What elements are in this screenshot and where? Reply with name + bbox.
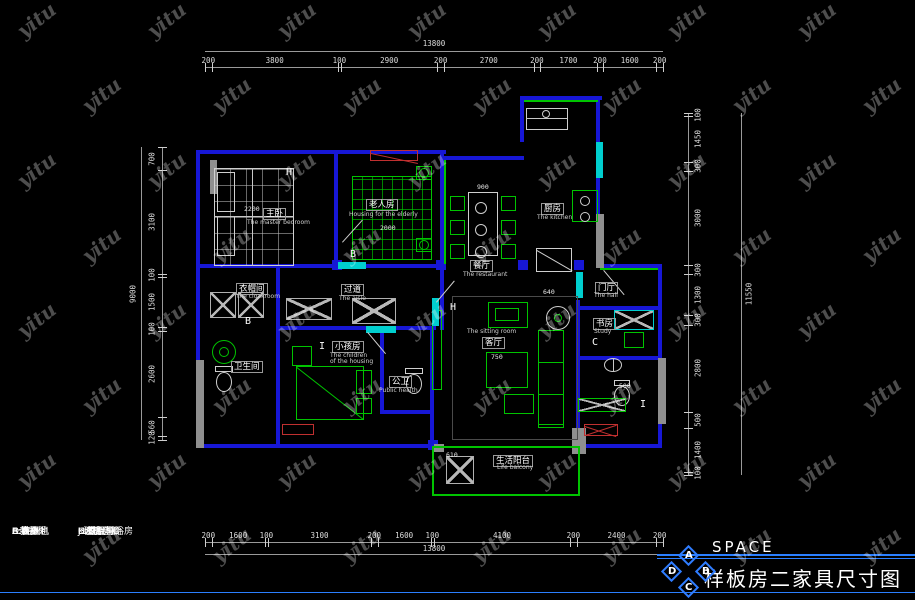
dim-tick: [684, 113, 693, 114]
inner-dim: 640: [543, 288, 555, 296]
watermark-text: yitu: [12, 147, 61, 192]
burner: [580, 212, 590, 222]
watermark-text: yitu: [857, 522, 906, 567]
watermark-text: yitu: [727, 72, 776, 117]
dim-tick: [684, 315, 693, 316]
dim-total: 13800: [423, 39, 446, 48]
dim-label: 1600: [229, 531, 247, 540]
wall: [576, 444, 662, 448]
logo-letter: C: [685, 582, 692, 593]
watermark-text: yitu: [207, 522, 256, 567]
dim-label: 2600: [148, 365, 157, 383]
watermark-text: yitu: [12, 0, 61, 43]
watermark-text: yitu: [662, 0, 711, 43]
dim-line: [162, 147, 163, 440]
watermark-text: yitu: [662, 447, 711, 492]
inner-dim: 2200: [244, 205, 260, 213]
dim-label: 100: [426, 531, 440, 540]
dim-label: 1400: [694, 441, 703, 459]
wall: [196, 150, 338, 154]
dim-label: 100: [148, 322, 157, 336]
dim-tick: [444, 63, 445, 72]
dim-tick: [378, 538, 379, 547]
logo-letter: A: [685, 550, 693, 561]
basin-line: [613, 358, 614, 372]
watermark-text: yitu: [792, 147, 841, 192]
dim-label: 300: [694, 313, 703, 327]
watermark-text: yitu: [792, 447, 841, 492]
plate: [475, 246, 487, 258]
wall: [380, 330, 384, 414]
dim-tick: [663, 538, 664, 547]
room-label-en: Housing for the elderly: [349, 212, 418, 219]
column: [574, 260, 584, 270]
sink-line: [526, 118, 568, 119]
watermark-text: yitu: [727, 372, 776, 417]
dim-tick: [158, 277, 167, 278]
dim-label: 2900: [380, 56, 398, 65]
dim-line: [741, 113, 742, 475]
furniture-letter: B: [245, 316, 251, 327]
dim-label: 3100: [310, 531, 328, 540]
dim-label: 500: [694, 413, 703, 427]
watermark-text: yitu: [597, 222, 646, 267]
watermark-text: yitu: [597, 522, 646, 567]
dim-label: 1600: [621, 56, 639, 65]
room-label-cn: 客厅: [482, 337, 505, 349]
dining-chair: [501, 220, 516, 235]
dim-tick: [684, 472, 693, 473]
wall-fill: [658, 358, 666, 424]
plate: [475, 202, 487, 214]
room-label-en: the cloakroom: [237, 294, 280, 301]
lamp: [419, 240, 429, 250]
dim-label: 200: [653, 531, 667, 540]
dim-tick: [158, 147, 167, 148]
watermark-text: yitu: [792, 297, 841, 342]
watermark-text: yitu: [532, 0, 581, 43]
dim-label: 3800: [266, 56, 284, 65]
door-frame: [576, 272, 583, 298]
dim-tick: [684, 428, 693, 429]
dim-label: 3100: [148, 213, 157, 231]
dim-label: 2400: [608, 531, 626, 540]
door-frame: [366, 326, 396, 333]
wardrobe-hatch: [210, 292, 236, 318]
dim-label: 200: [593, 56, 607, 65]
wall-fill: [196, 360, 204, 448]
room-label-en: Life balcony: [497, 465, 533, 472]
lamp: [419, 168, 429, 178]
door-frame: [596, 142, 603, 178]
dim-label: 1700: [559, 56, 577, 65]
dim-line: [205, 67, 663, 68]
dim-label: 1600: [395, 531, 413, 540]
watermark-text: yitu: [532, 147, 581, 192]
wall: [196, 444, 436, 448]
wall: [280, 326, 436, 330]
dining-chair: [501, 196, 516, 211]
dim-tick: [158, 417, 167, 418]
dim-label: 1450: [694, 130, 703, 148]
green-line: [524, 100, 598, 102]
plate: [475, 224, 487, 236]
room-label-en: The sitting room: [467, 329, 516, 336]
bottom-rule: [0, 592, 915, 593]
wall: [334, 150, 338, 268]
study-desk: [624, 332, 644, 348]
cabinet-hatch: [286, 298, 332, 320]
room-label-en: Study: [594, 329, 611, 336]
dim-label: 4100: [493, 531, 511, 540]
dim-tick: [684, 274, 693, 275]
dim-tick: [684, 265, 693, 266]
room-label-cn: 老人房: [366, 199, 398, 211]
dim-tick: [577, 538, 578, 547]
dim-tick: [603, 63, 604, 72]
watermark-text: yitu: [467, 522, 516, 567]
brand-box: id 室内设计师事务所 INTERIOR DESIGNER FIRM: [840, 0, 915, 85]
dim-tick: [684, 412, 693, 413]
dim-label: 1300: [694, 286, 703, 304]
red-fixture: [282, 424, 314, 435]
room-label-en: Public health: [379, 388, 418, 395]
dim-label: 300: [694, 160, 703, 174]
room-label-en: The restaurant: [463, 272, 507, 279]
furniture-letter: I: [319, 341, 325, 352]
dining-chair: [450, 244, 465, 259]
dim-tick: [158, 331, 167, 332]
dim-tick: [212, 63, 213, 72]
watermark-text: yitu: [857, 372, 906, 417]
dim-label: 100: [148, 269, 157, 283]
watermark-text: yitu: [12, 297, 61, 342]
wall: [520, 96, 524, 142]
dim-tick: [158, 327, 167, 328]
dim-tick: [434, 538, 435, 547]
dining-chair: [450, 196, 465, 211]
cabinet: [292, 346, 312, 366]
bed-line: [252, 168, 253, 266]
watermark-text: yitu: [272, 447, 321, 492]
cad-canvas: 1380020038001002900200270020017002001600…: [0, 0, 915, 600]
dim-label: 200: [434, 56, 448, 65]
green-line: [600, 268, 658, 270]
dim-tick: [684, 475, 693, 476]
room-label-en: The kitchen: [537, 215, 572, 222]
room-label-en: The master bedroom: [247, 220, 310, 227]
logo-letter: D: [668, 566, 676, 577]
dim-total: 9000: [129, 284, 138, 302]
watermark-text: yitu: [597, 72, 646, 117]
dim-label: 200: [567, 531, 581, 540]
inner-dim: 500: [619, 382, 631, 390]
dim-label: 200: [202, 56, 216, 65]
room-label-en: The hall: [594, 293, 618, 300]
dim-label: 100: [694, 467, 703, 481]
legend-item: F:雜物柜: [12, 527, 47, 538]
dim-line: [205, 51, 663, 52]
dim-label: 1500: [148, 293, 157, 311]
room-label-en: The aisle: [339, 296, 366, 303]
door-frame: [338, 262, 366, 269]
dim-line: [141, 147, 142, 440]
dim-tick: [158, 436, 167, 437]
dim-label: 100: [260, 531, 274, 540]
room-label-cn: 卫生间: [231, 361, 263, 373]
column: [518, 260, 528, 270]
dim-label: 200: [530, 56, 544, 65]
watermark-text: yitu: [77, 222, 126, 267]
room-label-en: of the housing: [330, 359, 373, 366]
dim-tick: [684, 171, 693, 172]
brand-name: SPACE: [712, 538, 775, 556]
washing-machine: [446, 456, 474, 484]
dim-label: 120: [148, 431, 157, 445]
dim-line: [205, 554, 663, 555]
dim-label: 200: [653, 56, 667, 65]
wall-fill: [596, 214, 604, 268]
dim-tick: [268, 538, 269, 547]
watermark-text: yitu: [77, 372, 126, 417]
furniture-letter: B: [350, 249, 356, 260]
pillow: [217, 172, 235, 212]
inner-dim: 2000: [380, 224, 396, 232]
watermark-text: yitu: [727, 222, 776, 267]
dining-chair: [501, 244, 516, 259]
dim-tick: [684, 116, 693, 117]
dim-label: 100: [333, 56, 347, 65]
dim-tick: [540, 63, 541, 72]
burner: [580, 196, 590, 206]
toilet-bowl: [216, 372, 232, 392]
dining-chair: [450, 220, 465, 235]
watermark-text: yitu: [77, 72, 126, 117]
furniture-letter: I: [640, 399, 646, 410]
furniture-letter: C: [592, 337, 598, 348]
pillow: [217, 216, 235, 256]
dim-tick: [684, 162, 693, 163]
dim-tick: [158, 170, 167, 171]
inner-dim: 610: [446, 451, 458, 459]
watermark-text: yitu: [207, 72, 256, 117]
dim-tick: [341, 63, 342, 72]
chair: [356, 398, 372, 414]
dim-label: 2800: [694, 359, 703, 377]
watermark-text: yitu: [142, 447, 191, 492]
rug: [452, 296, 578, 440]
dim-label: 2700: [480, 56, 498, 65]
dim-tick: [684, 325, 693, 326]
legend-item: L:藝術隔斷: [78, 527, 122, 538]
wall: [380, 410, 434, 414]
inner-dim: 750: [491, 353, 503, 361]
furniture-letter: H: [286, 167, 292, 178]
wall: [444, 156, 524, 160]
daybed: [614, 310, 654, 330]
dim-line: [688, 113, 689, 475]
dim-tick: [158, 274, 167, 275]
watermark-text: yitu: [12, 447, 61, 492]
dim-label: 100: [694, 108, 703, 122]
dim-label: 300: [694, 263, 703, 277]
watermark-text: yitu: [662, 297, 711, 342]
dim-label: 200: [367, 531, 381, 540]
dim-tick: [663, 63, 664, 72]
watermark-text: yitu: [402, 0, 451, 43]
dim-total: 11550: [745, 283, 754, 306]
watermark-text: yitu: [792, 0, 841, 43]
dim-tick: [212, 538, 213, 547]
watermark-text: yitu: [337, 72, 386, 117]
shower-drain: [219, 347, 229, 357]
desk: [356, 370, 372, 394]
drawing-title: 样板房二家具尺寸图: [704, 563, 902, 592]
inner-dim: 900: [477, 183, 489, 191]
logo-letter: B: [702, 566, 710, 577]
watermark-text: yitu: [272, 0, 321, 43]
green-line: [444, 160, 446, 264]
dim-label: 700: [148, 152, 157, 166]
dim-label: 200: [202, 531, 216, 540]
watermark-text: yitu: [142, 0, 191, 43]
watermark-text: yitu: [467, 72, 516, 117]
dim-label: 3000: [694, 209, 703, 227]
watermark-text: yitu: [857, 222, 906, 267]
cabinet-hatch: [578, 398, 626, 412]
furniture-letter: H: [450, 302, 456, 313]
faucet: [542, 110, 550, 118]
wall: [362, 264, 444, 268]
dim-tick: [158, 440, 167, 441]
